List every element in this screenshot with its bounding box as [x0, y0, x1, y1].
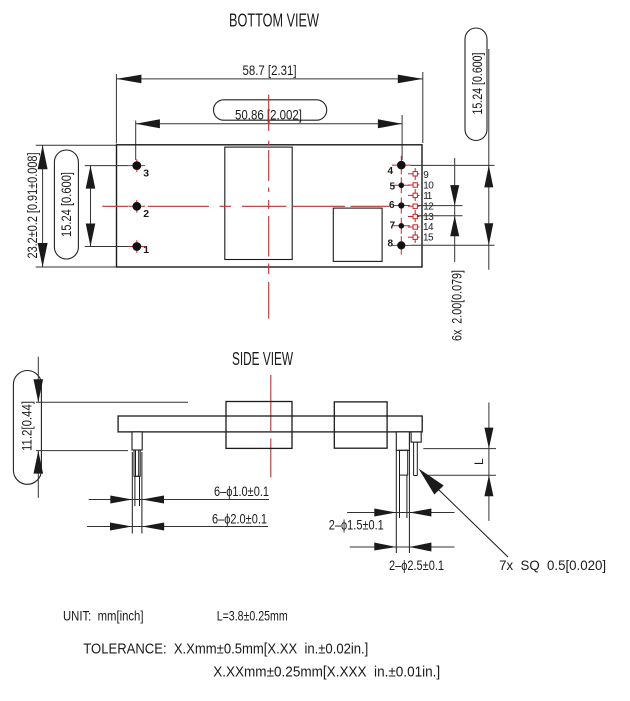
svg-text:6–ϕ2.0±0.1: 6–ϕ2.0±0.1 [212, 512, 267, 527]
svg-text:BOTTOM VIEW: BOTTOM VIEW [229, 11, 319, 31]
svg-text:10: 10 [423, 180, 434, 191]
svg-text:2–ϕ1.5±0.1: 2–ϕ1.5±0.1 [329, 518, 384, 533]
svg-text:15: 15 [423, 233, 434, 244]
svg-text:15.24 [0.600]: 15.24 [0.600] [58, 172, 74, 237]
svg-text:8: 8 [388, 238, 394, 249]
svg-text:SIDE VIEW: SIDE VIEW [232, 349, 293, 369]
svg-text:15.24 [0.600]: 15.24 [0.600] [469, 53, 485, 115]
svg-text:7x SQ 0.5[0.020]: 7x SQ 0.5[0.020] [499, 557, 606, 573]
svg-text:11: 11 [423, 191, 432, 202]
svg-text:6: 6 [389, 200, 395, 211]
svg-text:6x 2.00[0.079]: 6x 2.00[0.079] [449, 270, 465, 341]
svg-text:7: 7 [390, 221, 396, 232]
svg-text:2–ϕ2.5±0.1: 2–ϕ2.5±0.1 [389, 558, 444, 573]
svg-text:3: 3 [143, 168, 149, 180]
svg-text:X.XXmm±0.25mm[X.XXX in.±0.01i: X.XXmm±0.25mm[X.XXX in.±0.01in.] [213, 665, 440, 681]
svg-text:58.7 [2.31]: 58.7 [2.31] [243, 62, 297, 78]
svg-text:TOLERANCE: X.Xmm±0.5mm[X.XX: TOLERANCE: X.Xmm±0.5mm[X.XX in.±0.02in.] [83, 642, 368, 658]
svg-text:L=3.8±0.25mm: L=3.8±0.25mm [217, 608, 288, 624]
svg-text:L: L [472, 458, 486, 465]
svg-text:UNIT: mm[inch]: UNIT: mm[inch] [63, 608, 144, 624]
svg-text:4: 4 [388, 166, 394, 177]
svg-text:2: 2 [143, 208, 149, 220]
svg-text:6–ϕ1.0±0.1: 6–ϕ1.0±0.1 [214, 484, 269, 499]
svg-text:1: 1 [143, 244, 149, 256]
svg-text:23.2±0.2 [0.91±0.008]: 23.2±0.2 [0.91±0.008] [24, 153, 40, 259]
svg-text:9: 9 [423, 170, 429, 181]
svg-text:11.2[0.44]: 11.2[0.44] [20, 401, 35, 451]
svg-text:5: 5 [390, 182, 396, 193]
svg-text:13: 13 [423, 212, 434, 223]
